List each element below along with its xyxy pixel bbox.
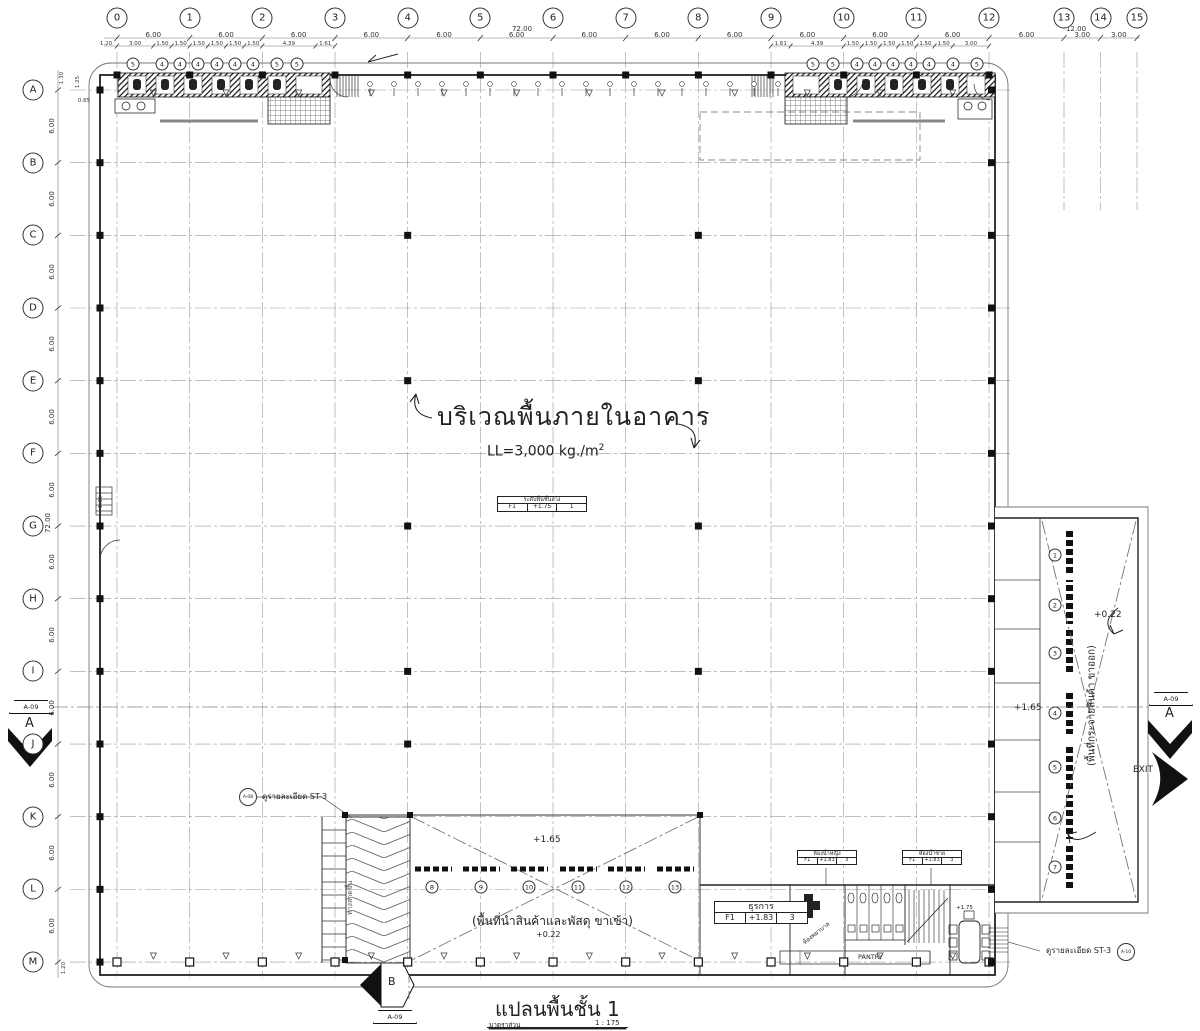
stair-level: +1.75 [956,905,973,911]
toilet-female-box: ห้องน้ำหญิง F1 +1.83 3 [797,850,857,865]
section-ref-right: A-09 [1149,692,1193,706]
dock-number: 9 [475,881,488,894]
grid-row-bubble-D: D [23,298,44,319]
dim-left-gap-10: 6.00 [48,845,56,861]
receiving-area-label: (พื้นที่นำสินค้าและพัสดุ ขาเข้า) [430,912,675,931]
dim-top-gap-13: 3.00 [1074,31,1090,39]
dim-sub-left-1: 1.50 [156,41,168,47]
floor-level-box: ระดับพื้นชั้นล่าง F1 +1.75 1 [497,496,587,512]
dock-number: 6 [1049,812,1062,825]
dim-top-gap-4: 6.00 [436,31,452,39]
dim-top-gap-1: 6.00 [218,31,234,39]
dock-bars-right [1066,530,1073,889]
grid-column-bubble-3: 3 [325,8,346,29]
dim-sub-right-3: 1.50 [865,41,877,47]
dim-left-gap-7: 6.00 [48,627,56,643]
dim-left-gap-5: 6.00 [48,482,56,498]
structure-columns [97,72,996,967]
dim-top-gap-3: 6.00 [364,31,380,39]
dock-number: 13 [669,881,682,894]
dimension-lines [55,35,1140,978]
grid-column-bubble-6: 6 [543,8,564,29]
grid-column-bubble-15: 15 [1127,8,1148,29]
stair-note-ref: A-10 [1117,943,1135,961]
grid-row-bubble-F: F [23,443,44,464]
section-ref-left: A-09 [9,700,53,714]
dock-number: 2 [1049,599,1062,612]
fixture-callout: 5 [827,58,840,71]
dim-sub-left-2: 1.50 [174,41,186,47]
dim-left-gap-9: 6.00 [48,773,56,789]
dim-left-gap-3: 6.00 [48,337,56,353]
dim-a2: 1.25 [75,76,81,88]
grid-column-bubble-8: 8 [688,8,709,29]
dim-top-gap-2: 6.00 [291,31,307,39]
grid-column-bubble-12: 12 [979,8,1000,29]
dim-overall-left: 72.00 [44,513,52,533]
dim-g: 1.65 [98,496,104,508]
grid-column-bubble-2: 2 [252,8,273,29]
floor-plan-drawing [0,0,1200,1031]
main-area-title: บริเวณพื้นภายในอาคาร [437,397,710,437]
dim-top-gap-11: 6.00 [945,31,961,39]
dim-top-gap-6: 6.00 [582,31,598,39]
dim-top-gap-14: 3.00 [1111,31,1127,39]
dispatch-level-upper: +0.22 [1094,610,1122,620]
exit-arrow [1152,752,1188,806]
dock-number: 11 [572,881,585,894]
dispatch-level-mid: +1.65 [1014,703,1042,713]
dim-sub-right-4: 1.50 [883,41,895,47]
dim-sub-left-3: 1.50 [193,41,205,47]
fixture-callout: 4 [869,58,882,71]
grid-lines [70,52,1137,978]
dock-number: 8 [426,881,439,894]
dim-left-gap-6: 6.00 [48,555,56,571]
fixture-callout: 4 [923,58,936,71]
grid-column-bubble-5: 5 [470,8,491,29]
ramp-note: ดูรายละเอียด ST-3 [262,790,327,803]
section-letter-left: A [25,716,34,731]
ramp [256,797,410,963]
toilet-block-left [115,73,330,124]
dim-top-gap-8: 6.00 [727,31,743,39]
dim-edge-left-top: 1.20 [100,41,112,47]
dock-number: 1 [1049,549,1062,562]
grid-row-bubble-K: K [23,806,44,827]
fixture-callout: 5 [271,58,284,71]
grid-row-bubble-H: H [23,588,44,609]
grid-row-bubble-E: E [23,370,44,391]
grid-column-bubble-7: 7 [615,8,636,29]
ramp-label: ทางลาดขึ้น [345,881,356,915]
office-room-box: ธุรการ F1 +1.83 3 [714,901,808,924]
fixture-callout: 5 [291,58,304,71]
toilet-block-right [785,73,995,124]
dim-sub-left-8: 1.61 [319,41,331,47]
fixture-callout: 4 [192,58,205,71]
grid-column-bubble-0: 0 [107,8,128,29]
dock-number: 12 [620,881,633,894]
fixture-callout: 4 [174,58,187,71]
fixture-callout: 4 [851,58,864,71]
receiving-level-lower: +0.22 [536,930,561,939]
grid-row-bubble-C: C [23,225,44,246]
grid-row-bubble-J: J [23,734,44,755]
section-letter-bottom: B [388,975,396,988]
dim-left-gap-11: 6.00 [48,918,56,934]
grid-column-bubble-10: 10 [833,8,854,29]
dock-number: 10 [523,881,536,894]
dim-left-gap-2: 6.00 [48,264,56,280]
dim-a1: 1.30 [59,72,65,84]
fixture-callout: 4 [887,58,900,71]
grid-column-bubble-14: 14 [1090,8,1111,29]
section-letter-right: A [1165,706,1174,721]
dim-sub-left-4: 1.50 [211,41,223,47]
toilet-male-box: ห้องน้ำชาย F1 +1.83 3 [902,850,962,865]
fixture-callout: 4 [229,58,242,71]
dim-sub-right-1: 4.39 [811,41,823,47]
grid-row-bubble-A: A [23,80,44,101]
live-load-label: LL=3,000 kg./m2 [487,443,604,460]
dock-number: 5 [1049,761,1062,774]
dim-left-gap-0: 6.00 [48,119,56,135]
dim-sub-right-7: 1.50 [937,41,949,47]
dim-top-gap-12: 6.00 [1019,31,1035,39]
fixture-callout: 5 [971,58,984,71]
pantry-label: PANTRY [858,953,883,961]
grid-column-bubble-9: 9 [761,8,782,29]
dim-sub-right-8: 3.00 [965,41,977,47]
dim-sub-right-5: 1.50 [901,41,913,47]
section-marker-bottom-arrow [360,963,414,1007]
dim-sub-left-7: 4.39 [283,41,295,47]
section-ref-bottom: A-09 [373,1010,417,1024]
receiving-level-upper: +1.65 [533,835,561,845]
dim-sub-right-2: 1.50 [847,41,859,47]
grid-row-bubble-M: M [23,952,44,973]
scale-value: 1 : 175 [595,1019,620,1027]
ramp-note-ref: A-08 [239,788,257,806]
dispatch-area-label: (พื้นที่กระจายสินค้า ขาออก) [1085,606,1100,806]
grid-row-bubble-I: I [23,661,44,682]
dim-sub-left-5: 1.50 [229,41,241,47]
dim-top-gap-7: 6.00 [654,31,670,39]
stair-note: ดูรายละเอียด ST-3 [1046,944,1111,957]
section-marker-right-arrow [1148,720,1192,759]
fixture-callout: 4 [905,58,918,71]
dim-sub-right-6: 1.50 [919,41,931,47]
dim-top-gap-0: 6.00 [146,31,162,39]
dim-edge-left-bottom: 1.20 [61,962,67,974]
fixture-callout: 4 [947,58,960,71]
grid-row-bubble-B: B [23,152,44,173]
fixture-callout: 5 [127,58,140,71]
fixture-callout: 4 [211,58,224,71]
dock-number: 3 [1049,647,1062,660]
grid-row-bubble-L: L [23,879,44,900]
grid-column-bubble-11: 11 [906,8,927,29]
scale-label: มาตราส่วน [489,1020,520,1030]
dim-left-gap-1: 6.00 [48,191,56,207]
floor-plan-canvas: บริเวณพื้นภายในอาคาร LL=3,000 kg./m2 ระด… [0,0,1200,1031]
dim-top-gap-5: 6.00 [509,31,525,39]
dim-sub-right-0: 1.61 [775,41,787,47]
dim-a3: 0.65 [78,98,90,104]
dock-number: 4 [1049,707,1062,720]
dim-top-gap-10: 6.00 [872,31,888,39]
exit-label: EXIT [1133,765,1153,775]
building-outline [89,63,1008,987]
grid-column-bubble-1: 1 [179,8,200,29]
fixture-callout: 4 [247,58,260,71]
grid-row-bubble-G: G [23,516,44,537]
dim-left-gap-4: 6.00 [48,409,56,425]
dim-top-gap-9: 6.00 [800,31,816,39]
dim-sub-left-6: 1.50 [247,41,259,47]
fixture-callout: 4 [156,58,169,71]
grid-column-bubble-4: 4 [397,8,418,29]
grid-column-bubble-13: 13 [1054,8,1075,29]
dim-left-gap-8: 6.00 [48,700,56,716]
fixture-callout: 5 [807,58,820,71]
dim-sub-left-0: 3.00 [129,41,141,47]
dock-number: 7 [1049,861,1062,874]
